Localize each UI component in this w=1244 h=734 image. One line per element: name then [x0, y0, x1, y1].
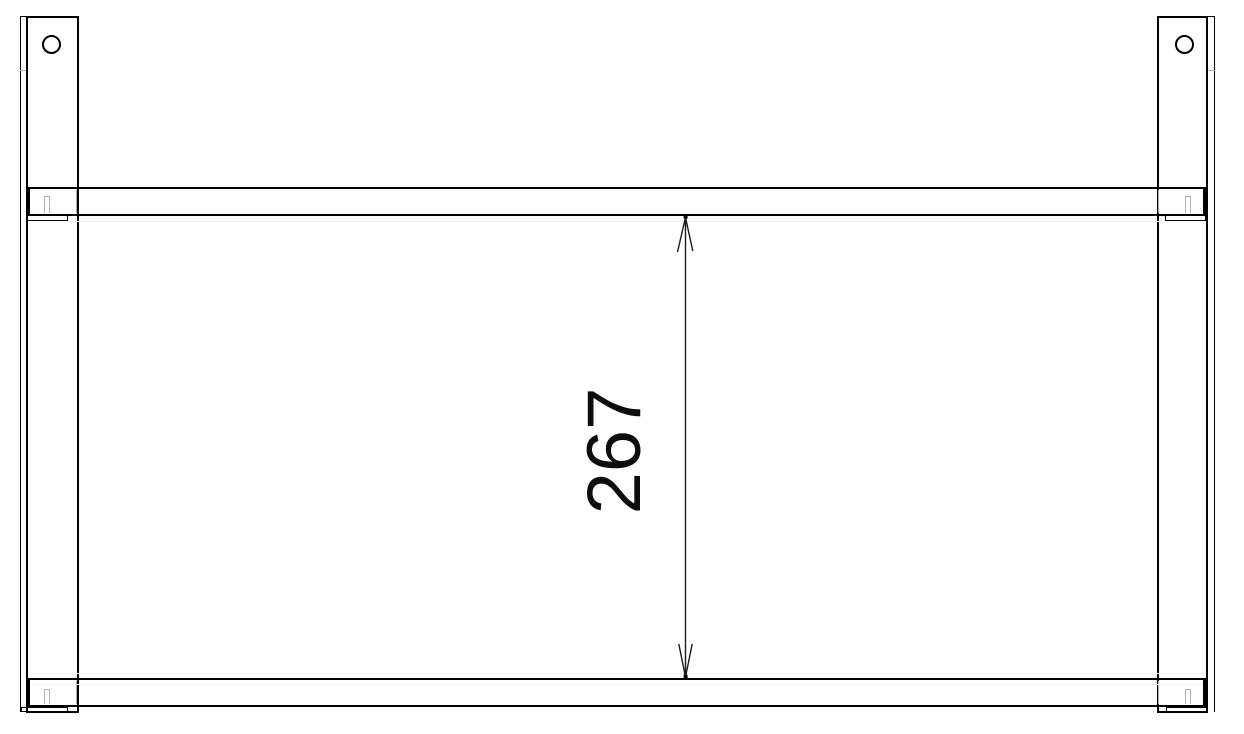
top-rail-left-lip	[27, 215, 68, 221]
dimension-arrow-up-icon	[678, 218, 693, 253]
top-rail-faint-back-edge	[69, 221, 1164, 222]
dimension-value-label: 267	[577, 388, 653, 515]
dimension-leader	[0, 0, 1244, 734]
cad-drawing-viewport: 267	[0, 0, 1244, 734]
top-rail-hidden-left-post-edge	[76, 190, 77, 213]
bottom-rail-outline	[27, 678, 1206, 707]
right-post-edge-seam	[1208, 70, 1215, 71]
right-post-hole	[1175, 35, 1194, 54]
right-post-outer-edge	[1208, 16, 1215, 712]
top-rail-right-hidden-tab	[1185, 196, 1191, 213]
bottom-rail-faint-back-edge-lower	[31, 684, 1203, 685]
left-post-edge-seam	[20, 70, 26, 71]
bottom-rail-right-lip	[1166, 707, 1208, 712]
top-rail-outline	[27, 187, 1206, 216]
top-rail-hidden-right-post-edge	[1158, 190, 1159, 213]
top-rail-left-endcap	[26, 187, 30, 216]
bottom-rail-right-hidden-tab	[1185, 689, 1191, 704]
bottom-rail-faint-back-edge-upper	[31, 673, 1203, 674]
top-rail-right-endcap	[1203, 187, 1207, 216]
left-post-outline	[26, 16, 79, 713]
right-post-outline	[1157, 16, 1208, 713]
bottom-rail-left-lip	[21, 707, 68, 712]
bottom-rail-right-endcap	[1203, 678, 1207, 707]
bottom-rail-left-hidden-tab	[44, 689, 50, 704]
left-post-hole	[42, 35, 61, 54]
bottom-rail-left-endcap	[26, 678, 30, 707]
top-rail-right-lip	[1165, 215, 1206, 221]
top-rail-left-hidden-tab	[44, 196, 50, 213]
